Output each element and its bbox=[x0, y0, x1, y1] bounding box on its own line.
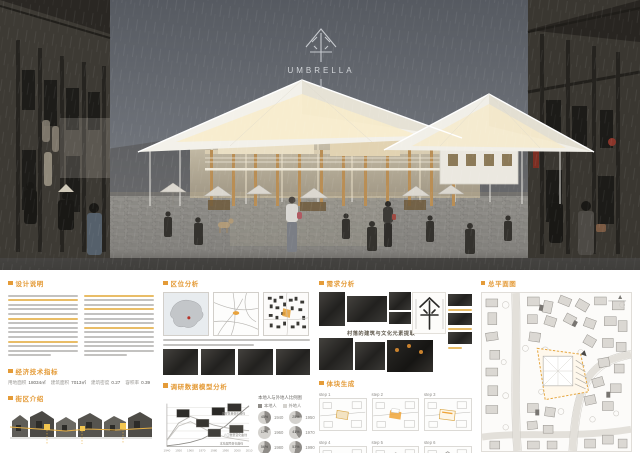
chart-photo-annotations bbox=[177, 403, 244, 436]
legend-swatch-outsider bbox=[283, 404, 287, 408]
step-label: step 1 bbox=[319, 392, 367, 397]
reference-photo bbox=[448, 294, 472, 306]
step-label: step 5 bbox=[372, 440, 420, 445]
indicator-value: 0.39 bbox=[141, 380, 150, 385]
section-title: 调研数据模型分析 bbox=[171, 381, 228, 391]
svg-text:1960: 1960 bbox=[187, 448, 194, 452]
massing-step: step 3 bbox=[424, 392, 472, 436]
svg-text:1940: 1940 bbox=[164, 448, 171, 452]
indicator-label: 容积率 bbox=[125, 380, 139, 386]
legend-label: 外地人 bbox=[289, 403, 302, 409]
street-photo bbox=[319, 338, 353, 370]
section-title: 设计说明 bbox=[16, 278, 44, 288]
location-maps bbox=[163, 292, 310, 336]
presentation-board: UMBRELLA 设计说明 bbox=[0, 0, 640, 453]
pie-chart-grid: 本地人与外地人比例图 本地人 外地人 45%1940 25%1950 17%19… bbox=[258, 395, 310, 453]
massing-step: step 5 bbox=[372, 440, 420, 453]
lantern-dot-icon bbox=[419, 350, 423, 354]
reference-photo-column bbox=[448, 294, 472, 352]
context-photo bbox=[238, 349, 273, 375]
pie-chart: 17% bbox=[258, 426, 271, 439]
road-network-map bbox=[213, 292, 259, 336]
massing-steps: step 1 step 2 step 3 step 4 step 5 bbox=[319, 392, 472, 453]
location-dot-icon bbox=[187, 316, 190, 319]
legend-swatch-local bbox=[258, 404, 262, 408]
pie-year: 1940 bbox=[274, 415, 283, 420]
project-site bbox=[537, 348, 588, 399]
massing-step: step 4 bbox=[319, 440, 367, 453]
svg-text:1950: 1950 bbox=[175, 448, 182, 452]
section-title: 需求分析 bbox=[327, 278, 355, 288]
village-photo bbox=[347, 296, 387, 322]
indicator-value: 7013㎡ bbox=[71, 380, 86, 386]
reference-photo bbox=[448, 313, 472, 325]
svg-text:1970: 1970 bbox=[199, 448, 206, 452]
umbrella-calligraphy-icon bbox=[413, 293, 446, 334]
legend-label: 本地人 bbox=[264, 403, 277, 409]
site-plan-drawing bbox=[481, 292, 632, 452]
column-location-survey: 区位分析 bbox=[163, 276, 310, 453]
svg-text:1990: 1990 bbox=[222, 448, 229, 452]
street-elevation-diagram bbox=[8, 407, 154, 445]
section-bullet-icon bbox=[481, 281, 486, 286]
section-title: 经济技术指标 bbox=[16, 366, 59, 376]
step-label: step 3 bbox=[424, 392, 472, 397]
craft-photo bbox=[389, 312, 411, 324]
indicator-label: 用地面积 bbox=[8, 380, 26, 386]
svg-text:2010: 2010 bbox=[246, 448, 253, 452]
section-bullet-icon bbox=[163, 383, 168, 388]
location-photo-row bbox=[163, 349, 310, 375]
pie-year: 1960 bbox=[274, 430, 283, 435]
section-bullet-icon bbox=[319, 381, 324, 386]
section-bullet-icon bbox=[8, 281, 13, 286]
series-label: 人口数量变化曲线 bbox=[224, 431, 247, 436]
series-label: 游客数量变化曲线 bbox=[222, 410, 245, 415]
calligraphy-panel bbox=[412, 292, 446, 334]
pie-grid-title: 本地人与外地人比例图 bbox=[258, 395, 310, 401]
massing-header: 体块生成 bbox=[319, 378, 472, 388]
column-siteplan: 总平面图 bbox=[481, 276, 634, 453]
pie-year: 1990 bbox=[305, 445, 314, 450]
column-design-notes: 设计说明 经济技术指标 bbox=[8, 276, 154, 453]
lantern-dot-icon bbox=[407, 344, 411, 348]
population-line-chart: 游客数量变化曲线 人口数量变化曲线 本地居民变化曲线 19401950 1960… bbox=[163, 395, 253, 453]
indicator-value: 18034㎡ bbox=[28, 380, 45, 386]
pie-chart: 56% bbox=[258, 441, 271, 453]
section-title: 体块生成 bbox=[327, 378, 355, 388]
demand-header: 需求分析 bbox=[319, 278, 472, 288]
town-figure-ground-map bbox=[263, 292, 309, 336]
indicator-value: 0.27 bbox=[111, 380, 120, 385]
analysis-panels: 设计说明 经济技术指标 bbox=[0, 270, 640, 453]
massing-step: step 1 bbox=[319, 392, 367, 436]
massing-step: step 6 bbox=[424, 440, 472, 453]
block-intro-header: 街区介绍 bbox=[8, 393, 154, 403]
pie-chart: 25% bbox=[289, 411, 302, 424]
hero-title: UMBRELLA bbox=[287, 66, 354, 75]
pie-year: 1970 bbox=[305, 430, 314, 435]
design-notes-header: 设计说明 bbox=[8, 278, 154, 288]
x-tick-labels: 19401950 19601970 19801990 20002010 bbox=[164, 448, 253, 452]
context-photo bbox=[201, 349, 236, 375]
pie-legend: 本地人 外地人 bbox=[258, 403, 310, 409]
siteplan-header: 总平面图 bbox=[481, 278, 634, 288]
indicators-header: 经济技术指标 bbox=[8, 366, 154, 376]
site-marker bbox=[233, 311, 239, 315]
demand-center-text: 村落的建筑与文化元素提取 bbox=[347, 330, 415, 337]
rain-overlay bbox=[0, 0, 640, 270]
indicator-list: 用地面积18034㎡ 建筑面积7013㎡ 建筑密度0.27 容积率0.39 bbox=[8, 380, 154, 386]
pie-chart: 45% bbox=[258, 411, 271, 424]
pie-chart: 53% bbox=[289, 441, 302, 453]
section-title: 总平面图 bbox=[488, 278, 516, 288]
hero-scene: UMBRELLA bbox=[0, 0, 640, 270]
massing-step: step 2 bbox=[372, 392, 420, 436]
section-bullet-icon bbox=[8, 369, 13, 374]
gate-photo bbox=[355, 342, 385, 370]
indicator-label: 建筑密度 bbox=[91, 380, 109, 386]
step-label: step 6 bbox=[424, 440, 472, 445]
series-label: 本地居民变化曲线 bbox=[220, 440, 243, 445]
section-title: 区位分析 bbox=[171, 278, 199, 288]
svg-text:1980: 1980 bbox=[211, 448, 218, 452]
section-bullet-icon bbox=[319, 281, 324, 286]
indicator-label: 建筑面积 bbox=[51, 380, 69, 386]
context-photo bbox=[276, 349, 311, 375]
section-bullet-icon bbox=[163, 281, 168, 286]
column-demand-massing: 需求分析 村落的建筑与文化元素提取 bbox=[319, 276, 472, 453]
context-photo bbox=[163, 349, 198, 375]
hero-rendering: UMBRELLA bbox=[0, 0, 640, 270]
step-label: step 4 bbox=[319, 440, 367, 445]
reference-photo bbox=[448, 332, 472, 344]
lantern-dot-icon bbox=[395, 348, 399, 352]
location-caption bbox=[163, 339, 310, 346]
pie-year: 1980 bbox=[274, 445, 283, 450]
pie-year: 1950 bbox=[305, 415, 314, 420]
demand-collage: 村落的建筑与文化元素提取 bbox=[319, 292, 472, 374]
village-photo bbox=[389, 292, 411, 310]
village-photo bbox=[319, 292, 345, 326]
design-notes-text bbox=[8, 292, 154, 359]
svg-text:2000: 2000 bbox=[234, 448, 241, 452]
pie-chart: 41% bbox=[289, 426, 302, 439]
section-title: 街区介绍 bbox=[16, 393, 44, 403]
step-label: step 2 bbox=[372, 392, 420, 397]
survey-header: 调研数据模型分析 bbox=[163, 381, 310, 391]
section-bullet-icon bbox=[8, 396, 13, 401]
location-header: 区位分析 bbox=[163, 278, 310, 288]
china-map-thumbnail bbox=[163, 292, 209, 336]
